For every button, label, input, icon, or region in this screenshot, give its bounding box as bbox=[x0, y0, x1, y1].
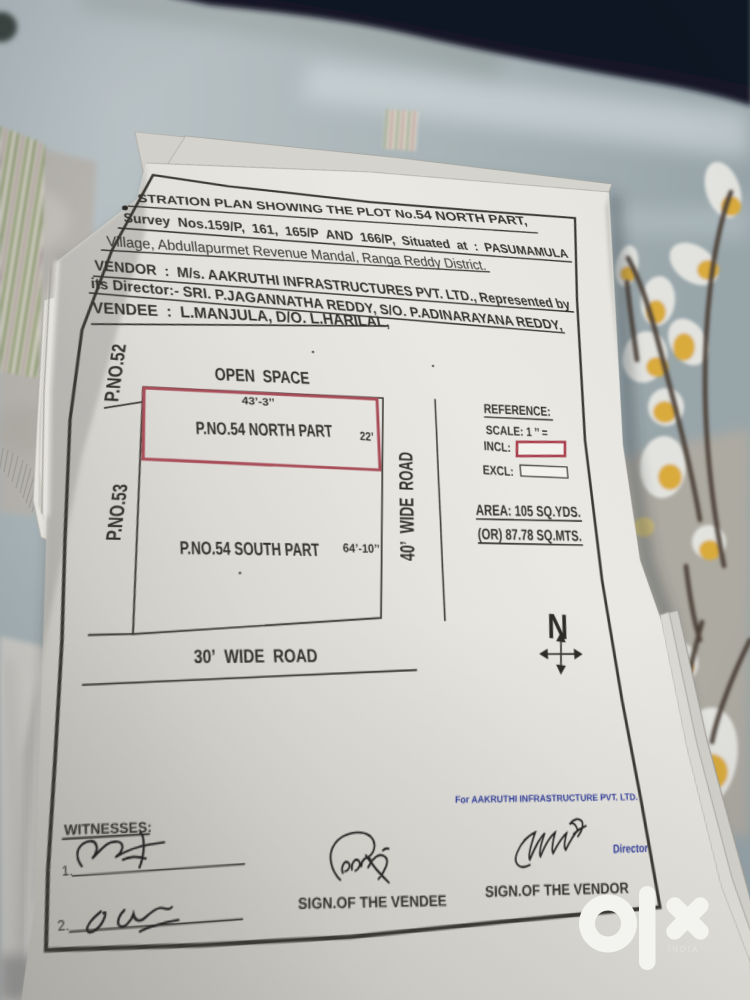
svg-text:INDIA: INDIA bbox=[668, 945, 699, 954]
